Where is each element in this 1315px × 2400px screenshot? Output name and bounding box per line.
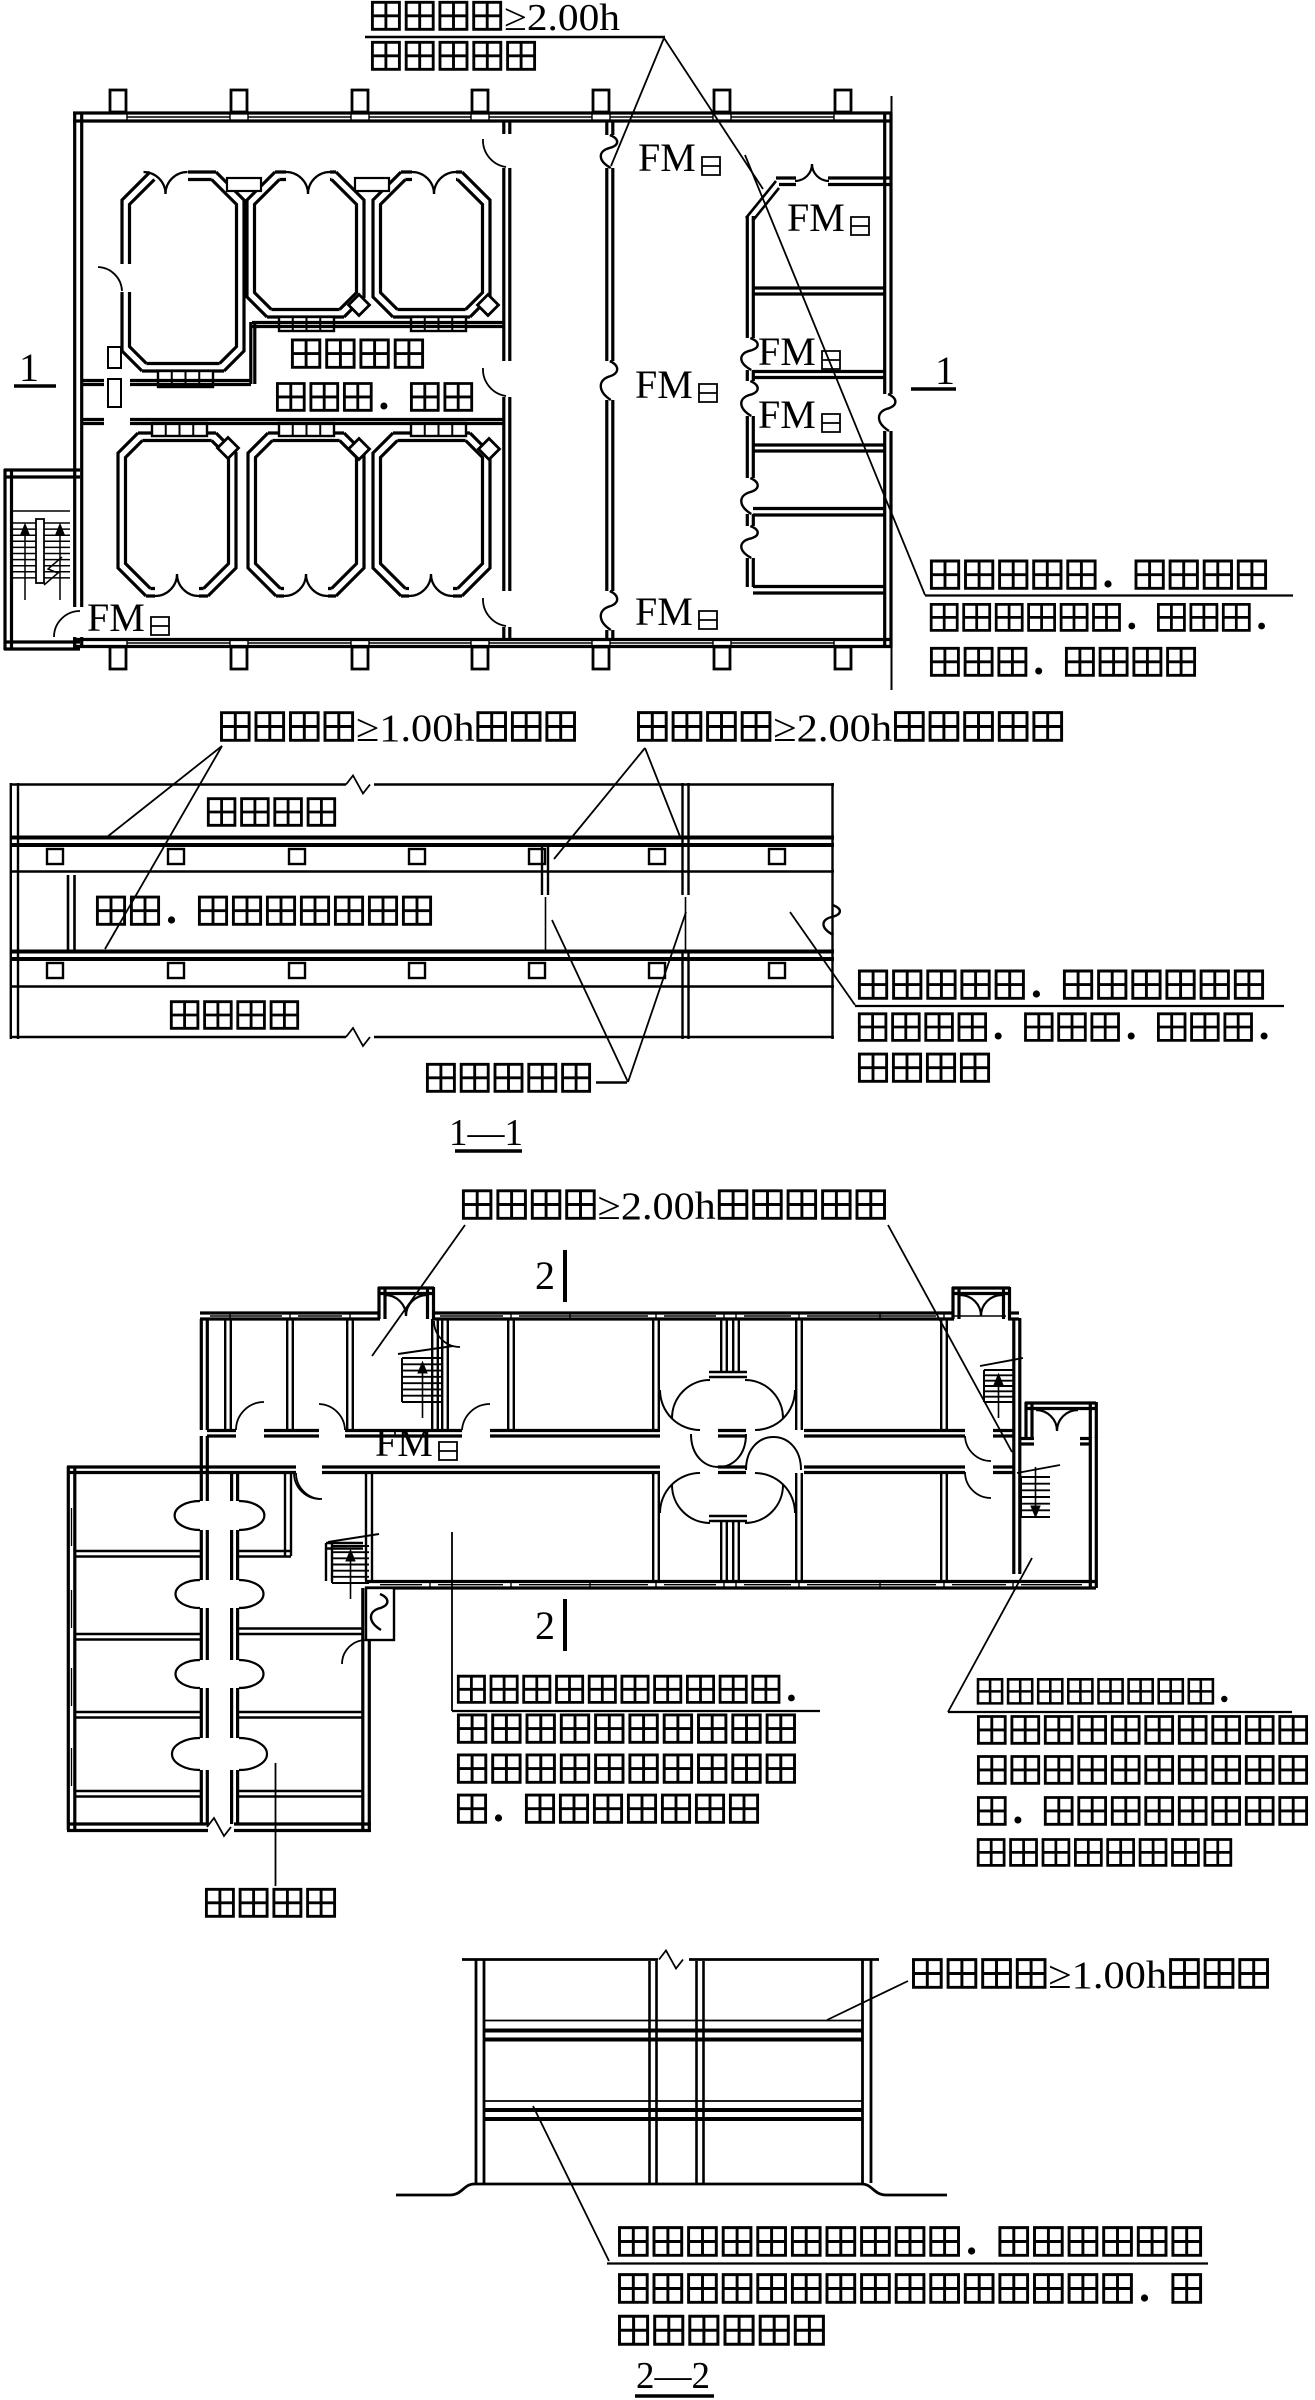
svg-text:≥2.00h: ≥2.00h xyxy=(504,0,620,39)
svg-text:FM: FM xyxy=(87,595,145,640)
svg-text:FM: FM xyxy=(787,195,845,240)
svg-text:1: 1 xyxy=(19,345,39,390)
svg-text:FM: FM xyxy=(638,135,696,180)
svg-text:FM: FM xyxy=(635,589,693,634)
svg-text:1: 1 xyxy=(935,348,955,393)
svg-text:≥1.00h: ≥1.00h xyxy=(356,707,474,750)
svg-text:FM: FM xyxy=(375,1420,433,1465)
svg-text:2: 2 xyxy=(535,1253,555,1298)
svg-text:FM: FM xyxy=(758,392,816,437)
svg-text:FM: FM xyxy=(758,329,816,374)
svg-text:≥2.00h: ≥2.00h xyxy=(598,1185,716,1228)
svg-text:≥1.00h: ≥1.00h xyxy=(1048,1954,1167,1997)
svg-text:1—1: 1—1 xyxy=(449,1112,523,1154)
svg-text:FM: FM xyxy=(635,362,693,407)
svg-text:2—2: 2—2 xyxy=(636,2355,710,2397)
svg-text:2: 2 xyxy=(535,1603,555,1648)
svg-text:≥2.00h: ≥2.00h xyxy=(773,707,892,750)
